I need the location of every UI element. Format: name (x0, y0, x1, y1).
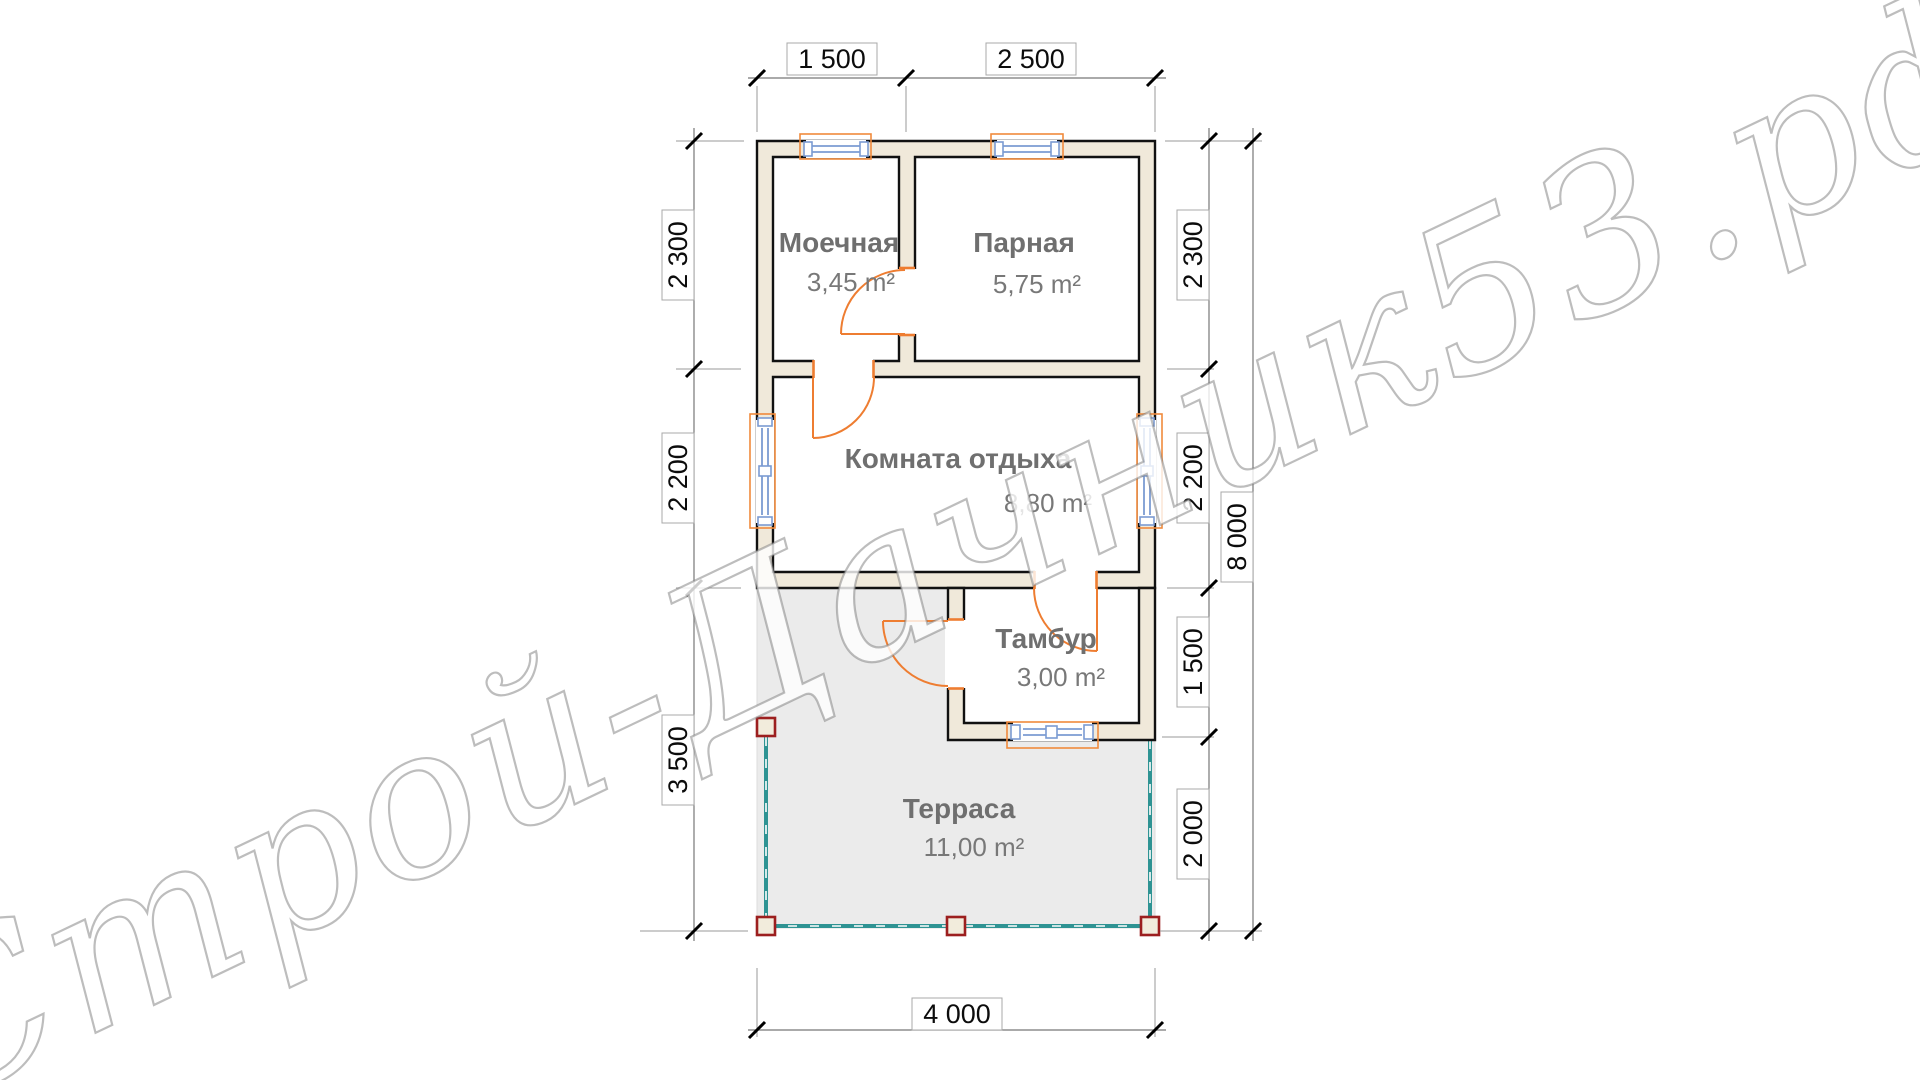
door-swing-arc (813, 377, 874, 438)
window-cap (758, 418, 772, 426)
dim-value: 2 300 (663, 221, 693, 289)
room-area-washroom: 3,45 m² (807, 267, 895, 297)
window-gap (997, 140, 1057, 158)
dim-label-top-1500: 1 500 (787, 43, 877, 75)
dim-value: 2 300 (1178, 221, 1208, 289)
terrace-post (757, 917, 775, 935)
dim-value: 4 000 (923, 999, 991, 1029)
window-cap (1011, 725, 1020, 739)
window-washroom (800, 134, 871, 159)
dim-value: 2 500 (997, 44, 1065, 74)
dim-label-top-2500: 2 500 (986, 43, 1076, 75)
room-name-washroom: Моечная (779, 227, 899, 258)
dim-value: 1 500 (1178, 628, 1208, 696)
dim-label-left-2200: 2 200 (662, 433, 694, 523)
opening-washroom-steam (896, 269, 918, 334)
window-steam (991, 134, 1063, 159)
dim-label-right-2300: 2 300 (1177, 210, 1209, 300)
terrace-post (1141, 917, 1159, 935)
window-gap (806, 140, 866, 158)
room-area-vestibule: 3,00 m² (1017, 662, 1105, 692)
room-name-steam: Парная (973, 227, 1075, 258)
dim-value: 2 000 (1178, 800, 1208, 868)
dim-label-bottom-4000: 4 000 (912, 998, 1002, 1030)
window-cap (1051, 142, 1059, 156)
floor-plan-page: 1 500 2 500 2 300 2 200 3 500 2 300 2 20… (0, 0, 1920, 1080)
dim-label-right-1500: 1 500 (1177, 617, 1209, 707)
window-cap (1046, 726, 1057, 738)
floor-plan-svg: 1 500 2 500 2 300 2 200 3 500 2 300 2 20… (0, 0, 1920, 1080)
room-area-steam: 5,75 m² (993, 269, 1081, 299)
window-cap (759, 466, 771, 476)
dim-label-right-2000: 2 000 (1177, 789, 1209, 879)
window-cap (1084, 725, 1093, 739)
room-name-terrace: Терраса (903, 793, 1016, 824)
window-cap (804, 142, 812, 156)
dim-value: 2 200 (663, 444, 693, 512)
dim-label-left-2300: 2 300 (662, 210, 694, 300)
opening-lounge-washroom (814, 359, 873, 380)
terrace-post (947, 917, 965, 935)
room-area-terrace: 11,00 m² (924, 832, 1025, 862)
window-cap (995, 142, 1003, 156)
window-cap (860, 142, 868, 156)
dim-value: 1 500 (798, 44, 866, 74)
